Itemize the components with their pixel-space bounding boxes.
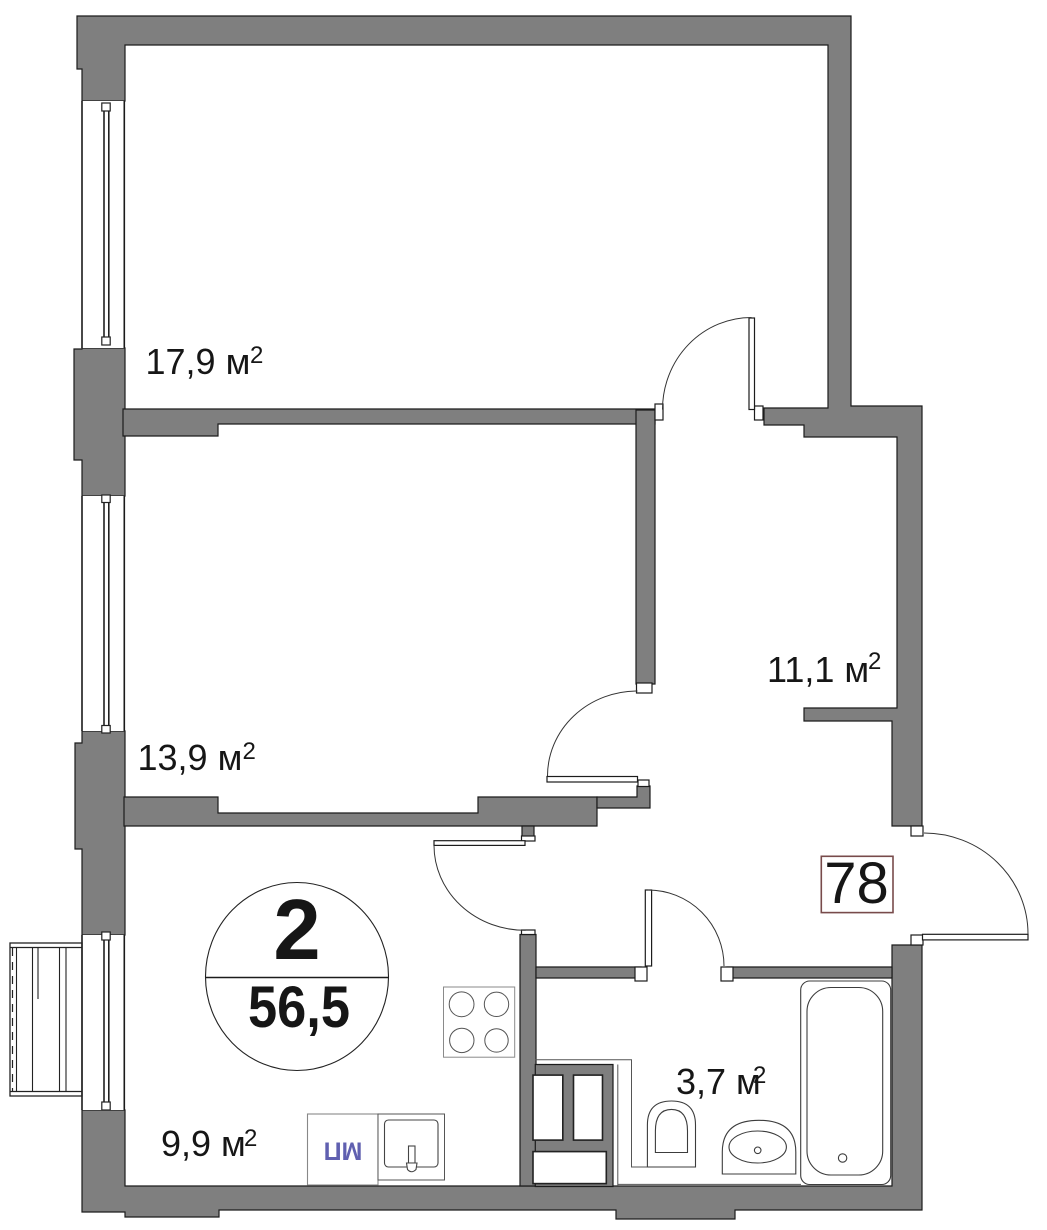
- svg-text:2: 2: [868, 648, 881, 675]
- svg-text:2: 2: [243, 738, 256, 765]
- svg-text:78: 78: [824, 851, 889, 916]
- svg-text:17,9 м: 17,9 м: [146, 341, 251, 382]
- svg-text:3,7 м: 3,7 м: [676, 1061, 761, 1102]
- svg-text:МП: МП: [324, 1137, 363, 1165]
- svg-text:11,1 м: 11,1 м: [767, 649, 869, 690]
- svg-text:56,5: 56,5: [248, 975, 350, 1040]
- svg-text:2: 2: [273, 883, 320, 978]
- svg-text:9,9 м: 9,9 м: [161, 1123, 246, 1164]
- svg-text:2: 2: [250, 342, 263, 369]
- svg-text:2: 2: [244, 1125, 257, 1152]
- svg-text:2: 2: [753, 1062, 766, 1089]
- svg-text:13,9 м: 13,9 м: [138, 737, 243, 778]
